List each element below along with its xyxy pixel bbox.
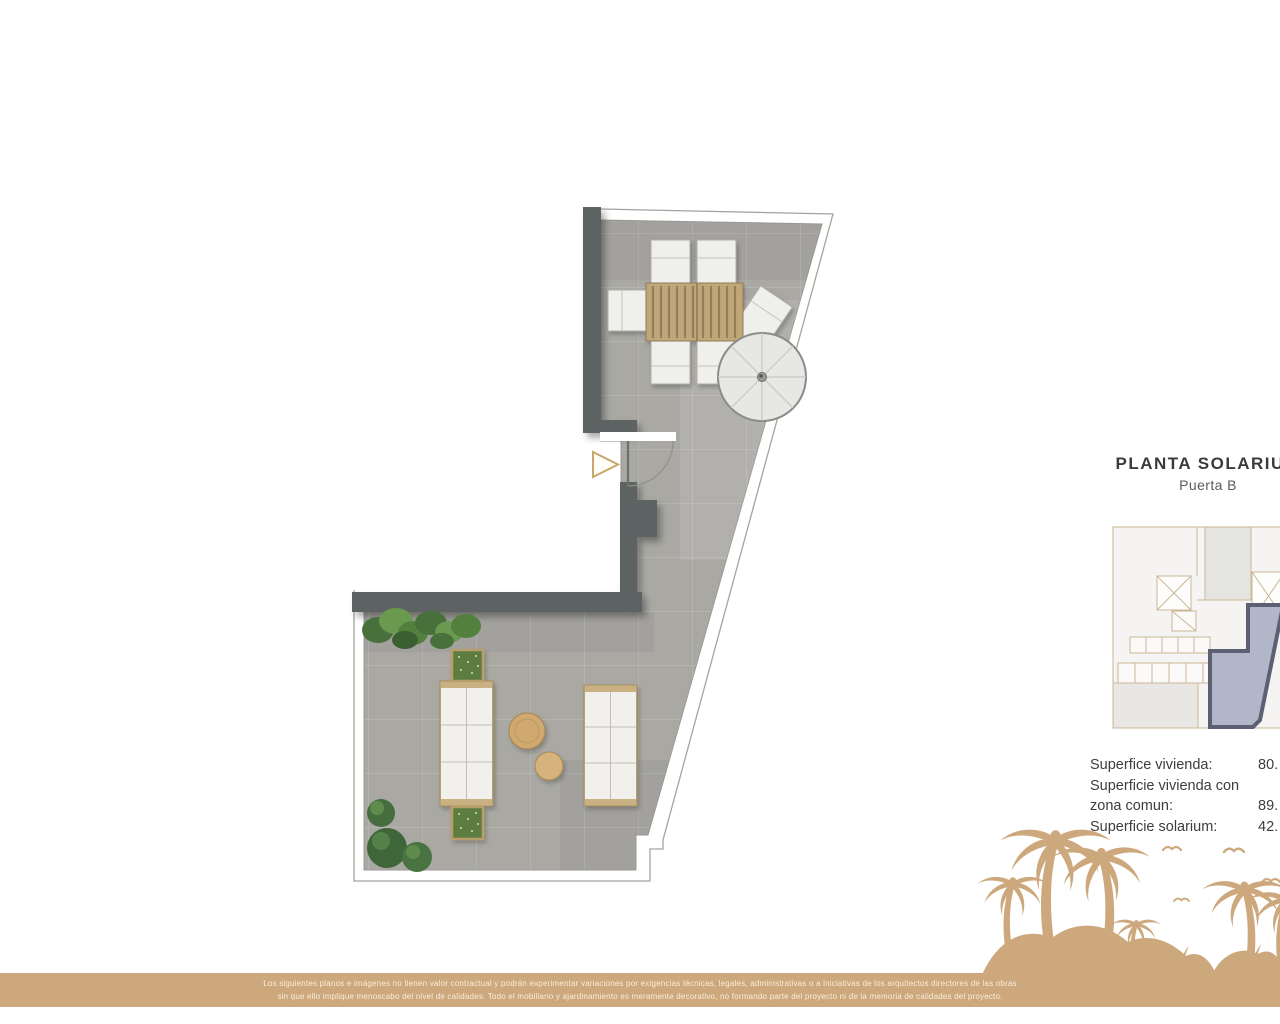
area-label: Superficie vivienda con — [1090, 778, 1239, 794]
dining-chair — [608, 290, 646, 331]
disclaimer-line-1: Los siguientes planos e imágenes no tien… — [0, 978, 1280, 991]
dining-chair — [651, 339, 690, 384]
bird-icon — [1163, 847, 1181, 850]
dining-table — [646, 283, 743, 341]
page-subtitle: Puerta B — [1113, 477, 1280, 493]
area-value: 80. — [1258, 755, 1278, 776]
area-row: Superficie vivienda con — [1090, 776, 1280, 797]
dining-chair — [651, 240, 690, 285]
plan-heading: PLANTA SOLARIUM Puerta B — [1113, 454, 1280, 493]
bird-icon — [1174, 899, 1189, 901]
disclaimer-band: Los siguientes planos e imágenes no tien… — [0, 973, 1280, 1007]
beach-artwork — [955, 805, 1280, 975]
sofa-left — [440, 681, 493, 806]
wall-middle-jut — [637, 500, 657, 537]
area-row: Superfice vivienda: 80. — [1090, 755, 1280, 776]
coffee-table-small — [535, 752, 563, 780]
wall-door-lintel — [583, 420, 637, 433]
wall-top-left — [583, 207, 601, 433]
sofa-right — [584, 685, 637, 806]
disclaimer-line-2: sin que ello implique menoscabo del nive… — [0, 991, 1280, 1004]
parasol — [718, 333, 806, 421]
bird-icon — [1224, 849, 1244, 852]
coffee-table-large — [509, 713, 545, 749]
area-label: Superfice vivienda: — [1090, 757, 1213, 773]
planter-top — [452, 650, 483, 681]
entrance-marker — [593, 452, 618, 477]
main-floor-plan — [330, 195, 860, 900]
page-title: PLANTA SOLARIUM — [1113, 454, 1280, 474]
dining-chair — [697, 240, 736, 285]
key-plan — [1105, 518, 1280, 736]
planter-bottom — [452, 807, 483, 839]
